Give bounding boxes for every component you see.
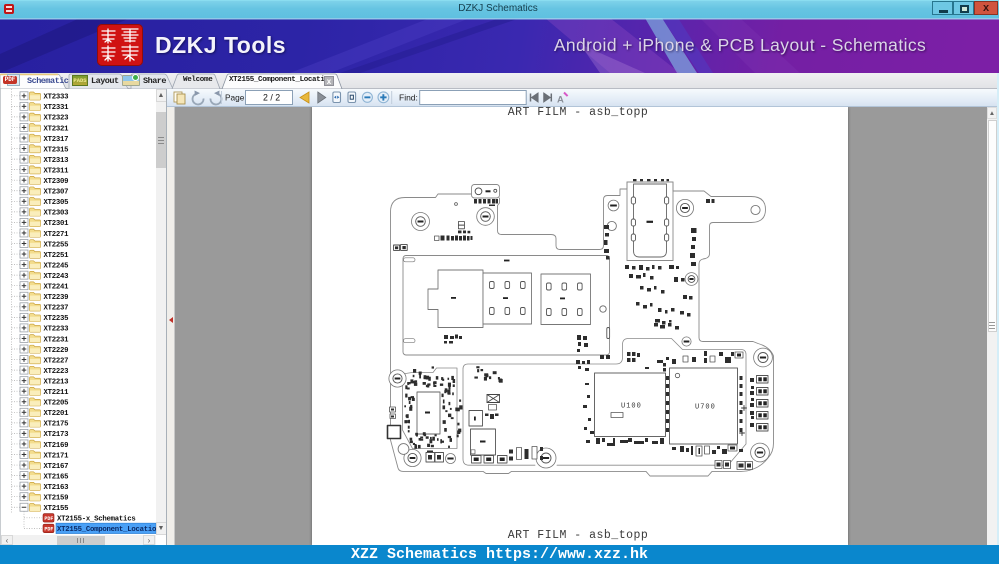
svg-text:XT2321: XT2321 xyxy=(44,125,70,133)
svg-text:XT2331: XT2331 xyxy=(44,104,70,112)
svg-text:XT2307: XT2307 xyxy=(44,189,69,197)
svg-text:Page:: Page: xyxy=(225,93,247,103)
svg-text:XT2309: XT2309 xyxy=(44,178,69,186)
svg-text:XT2231: XT2231 xyxy=(44,336,70,344)
svg-text:XT2165: XT2165 xyxy=(44,473,69,481)
svg-text:XT2205: XT2205 xyxy=(44,400,69,408)
svg-text:XT2311: XT2311 xyxy=(44,167,70,175)
svg-text:XT2223: XT2223 xyxy=(44,368,70,376)
svg-text:XT2315: XT2315 xyxy=(44,146,69,154)
svg-text:XT2155-x_Schematics: XT2155-x_Schematics xyxy=(57,516,135,524)
svg-text:XT2333: XT2333 xyxy=(44,94,70,102)
svg-text:XT2243: XT2243 xyxy=(44,273,70,281)
svg-text:XT2233: XT2233 xyxy=(44,326,70,334)
svg-text:Find:: Find: xyxy=(399,93,418,103)
svg-text:XT2213: XT2213 xyxy=(44,378,70,386)
svg-text:XT2245: XT2245 xyxy=(44,262,69,270)
svg-text:U100: U100 xyxy=(621,403,642,411)
svg-text:XT2175: XT2175 xyxy=(44,421,69,429)
svg-text:XT2173: XT2173 xyxy=(44,431,70,439)
svg-text:XT2237: XT2237 xyxy=(44,305,69,313)
svg-text:XT2271: XT2271 xyxy=(44,231,70,239)
svg-text:XT2317: XT2317 xyxy=(44,136,69,144)
svg-text:XT2251: XT2251 xyxy=(44,252,70,260)
svg-text:XT2229: XT2229 xyxy=(44,347,69,355)
svg-text:XT2171: XT2171 xyxy=(44,452,70,460)
svg-text:XT2155: XT2155 xyxy=(44,505,69,513)
svg-text:XT2169: XT2169 xyxy=(44,442,69,450)
svg-text:XT2305: XT2305 xyxy=(44,199,69,207)
svg-text:A: A xyxy=(557,95,564,106)
svg-text:2 / 2: 2 / 2 xyxy=(263,93,280,103)
svg-text:XT2155_Component_Location: XT2155_Component_Location xyxy=(57,526,160,534)
svg-text:XT2159: XT2159 xyxy=(44,495,69,503)
svg-text:XT2163: XT2163 xyxy=(44,484,70,492)
svg-text:XT2211: XT2211 xyxy=(44,389,70,397)
svg-text:XT2241: XT2241 xyxy=(44,284,70,292)
svg-text:XT2255: XT2255 xyxy=(44,241,69,249)
svg-text:XT2239: XT2239 xyxy=(44,294,69,302)
svg-text:XT2301: XT2301 xyxy=(44,220,70,228)
svg-text:XT2303: XT2303 xyxy=(44,210,70,218)
svg-text:XT2227: XT2227 xyxy=(44,357,69,365)
svg-text:U700: U700 xyxy=(695,404,716,412)
svg-text:XT2323: XT2323 xyxy=(44,115,70,123)
svg-text:XT2235: XT2235 xyxy=(44,315,69,323)
svg-text:XT2201: XT2201 xyxy=(44,410,70,418)
svg-text:XT2167: XT2167 xyxy=(44,463,69,471)
svg-text:XT2313: XT2313 xyxy=(44,157,70,165)
